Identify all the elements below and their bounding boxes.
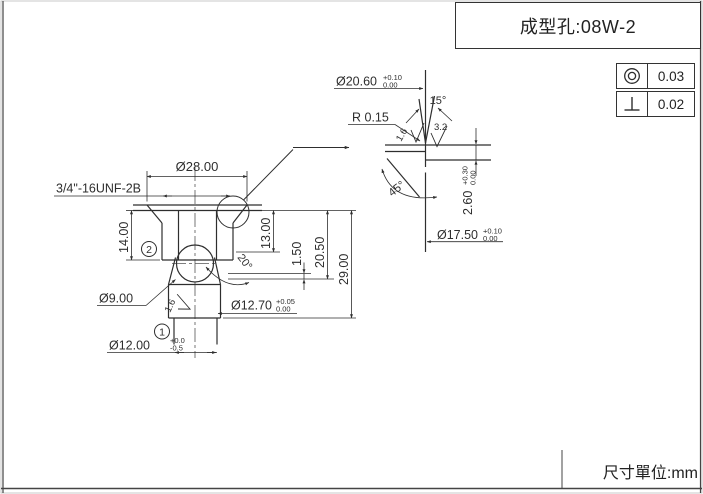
- dim-dia12-00: Ø12.00: [109, 339, 150, 353]
- dim-dia20-60: Ø20.60: [336, 75, 377, 89]
- dim-angle15: 15°: [430, 95, 447, 107]
- drawing-title: 成型孔:08W-2: [520, 13, 636, 39]
- dim-dia20-60-lower: 0.00: [383, 81, 398, 90]
- balloon-1: 1: [155, 324, 170, 339]
- drawing-sheet: 3/4"-16UNF-2B Ø28.00 14.00 13.00 1.50 20…: [0, 0, 703, 494]
- dim-depth14: 14.00: [117, 222, 131, 253]
- dim-depth20-50: 20.50: [313, 237, 327, 268]
- balloon-1-number: 1: [159, 326, 165, 338]
- dim-dia9: Ø9.00: [99, 292, 133, 306]
- unit-note-text: 尺寸單位:mm: [603, 459, 698, 483]
- roughness-detail-1-6: 1.6: [394, 127, 410, 144]
- dim-dia12-00-lower: -0.5: [170, 344, 183, 353]
- main-view-outline: [133, 205, 262, 345]
- dim-angle20: 20°: [235, 252, 255, 273]
- dim-radius: R 0.15: [352, 111, 389, 125]
- dim-dia12-70-lower: 0.00: [276, 305, 291, 314]
- gdt-concentricity-value: 0.03: [648, 64, 694, 88]
- balloon-2-number: 2: [146, 244, 152, 256]
- dim-dia28: Ø28.00: [176, 159, 219, 174]
- detail-view: Ø20.60 +0.10 0.00 R 0.15 15° 45° 1.6 3.2…: [334, 70, 503, 252]
- dim-depth1-50: 1.50: [290, 242, 304, 266]
- main-view: 3/4"-16UNF-2B Ø28.00 14.00 13.00 1.50 20…: [54, 148, 356, 359]
- title-block: 成型孔:08W-2: [455, 2, 701, 49]
- detail-indicator: [217, 148, 349, 229]
- dim-angle45: 45°: [386, 179, 407, 199]
- main-view-dim-lines: [54, 171, 356, 353]
- dim-dia12-70: Ø12.70: [231, 299, 272, 313]
- gdt-perpendicularity-value: 0.02: [648, 92, 694, 116]
- thread-callout: 3/4"-16UNF-2B: [56, 182, 141, 196]
- perpendicularity-icon: [617, 92, 648, 116]
- dim-dia17-50-lower: 0.00: [483, 234, 498, 243]
- gdt-frame-concentricity: 0.03: [616, 63, 695, 89]
- drawing-canvas: 3/4"-16UNF-2B Ø28.00 14.00 13.00 1.50 20…: [0, 0, 703, 494]
- dim-depth2-60: 2.60: [461, 191, 475, 215]
- dim-dia17-50: Ø17.50: [437, 228, 478, 242]
- unit-note: 尺寸單位:mm: [566, 456, 698, 486]
- roughness-detail-3-2: 3.2: [434, 122, 447, 133]
- dim-depth2-60-lower: 0.00: [469, 170, 478, 185]
- balloon-2: 2: [142, 242, 157, 257]
- concentricity-icon: [617, 64, 648, 88]
- dim-depth13: 13.00: [259, 218, 273, 249]
- roughness-main-value: 1.6: [163, 298, 179, 315]
- gdt-frame-perpendicularity: 0.02: [616, 91, 695, 117]
- dim-depth29: 29.00: [337, 254, 351, 285]
